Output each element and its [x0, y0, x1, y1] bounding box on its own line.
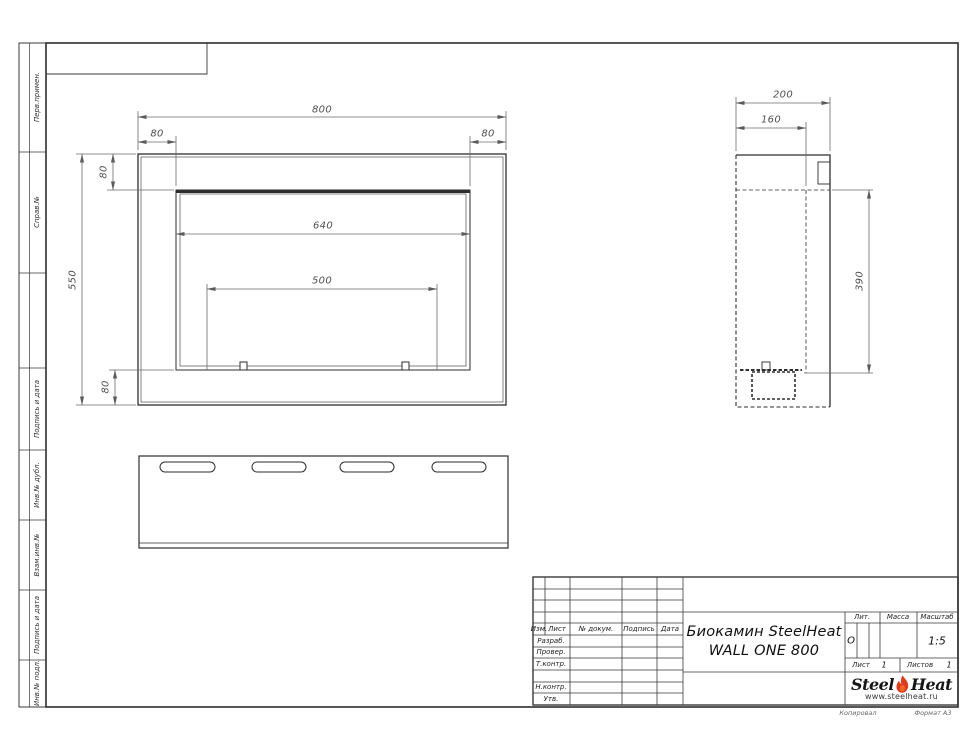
- margin-label-sprav-no: Справ.№: [33, 196, 41, 228]
- tb-list-label: Лист: [852, 661, 870, 669]
- tb-row-utv: Утв.: [544, 695, 559, 703]
- tb-masshtab-label: Масштаб: [920, 613, 953, 621]
- dim-label-flange-bottom: 80: [101, 380, 112, 393]
- burner-tab: [762, 362, 770, 370]
- burner-clip-left: [240, 362, 247, 370]
- format-label: Формат А3: [914, 709, 951, 717]
- margin-label-vzam-inv: Взам.инв.№: [33, 533, 41, 576]
- tb-listov-label: Листов: [907, 661, 933, 669]
- document-title: Биокамин SteelHeat WALL ONE 800: [684, 612, 844, 672]
- tb-list-value: 1: [881, 661, 886, 670]
- margin-label-podpis-data-1: Подпись и дата: [33, 380, 41, 438]
- tb-col-doc: № докум.: [579, 625, 614, 633]
- company-logo: Steel Heat www.steelheat.ru: [845, 671, 958, 705]
- tb-col-izm: Изм.: [531, 625, 547, 633]
- document-title-line1: Биокамин SteelHeat: [686, 623, 841, 642]
- dim-label-flange-left: 80: [150, 129, 163, 140]
- tb-listov-value: 1: [946, 661, 951, 670]
- tb-row-nkontr: Н.контр.: [535, 683, 566, 691]
- dim-label-flange-right: 80: [481, 129, 494, 140]
- margin-label-inv-dubl: Инв.№ дубл.: [33, 462, 41, 508]
- margin-label-inv-podl: Инв.№ подл.: [33, 660, 41, 706]
- vent-slot: [340, 462, 394, 472]
- burner-clip-right: [402, 362, 409, 370]
- burner-box: [752, 372, 795, 399]
- side-view: [736, 155, 830, 407]
- dim-label-total-height: 550: [68, 270, 79, 290]
- tb-col-podpis: Подпись: [623, 625, 655, 633]
- dimension-lines: [76, 97, 873, 405]
- tb-row-tkontr: Т.контр.: [536, 660, 566, 668]
- margin-label-podpis-data-2: Подпись и дата: [33, 596, 41, 654]
- vent-slot: [252, 462, 306, 472]
- tb-row-razrab: Разраб.: [537, 637, 565, 645]
- dim-label-flange-top: 80: [99, 165, 110, 178]
- vent-slot: [432, 462, 486, 472]
- mount-bracket: [818, 162, 830, 184]
- dim-label-depth: 200: [773, 90, 793, 101]
- tb-lit-label: Лит.: [854, 613, 870, 621]
- tb-row-prover: Провер.: [536, 648, 565, 656]
- dim-label-total-width: 800: [312, 105, 332, 116]
- dim-label-opening-width: 640: [313, 221, 333, 232]
- sheet-frame: [19, 43, 958, 707]
- margin-label-perv-primen: Перв.примен.: [33, 72, 41, 122]
- dim-label-opening-height: 390: [855, 271, 866, 291]
- tb-massa-label: Масса: [887, 613, 909, 621]
- bottom-view: [139, 456, 508, 548]
- logo-site-url: www.steelheat.ru: [865, 692, 938, 701]
- tb-lit-value: О: [847, 636, 855, 647]
- tb-col-data: Дата: [661, 625, 679, 633]
- kopiroval-label: Копировал: [839, 709, 876, 717]
- dim-label-inner-depth: 160: [761, 115, 781, 126]
- dim-label-burner-width: 500: [312, 276, 332, 287]
- vent-slot: [160, 462, 215, 472]
- tb-col-list: Лист: [548, 625, 566, 633]
- tb-masshtab-value: 1:5: [928, 635, 946, 648]
- drawing-sheet: 800 80 80 80 550 80 640 500 200 160 390 …: [0, 0, 970, 749]
- document-title-line2: WALL ONE 800: [709, 642, 819, 661]
